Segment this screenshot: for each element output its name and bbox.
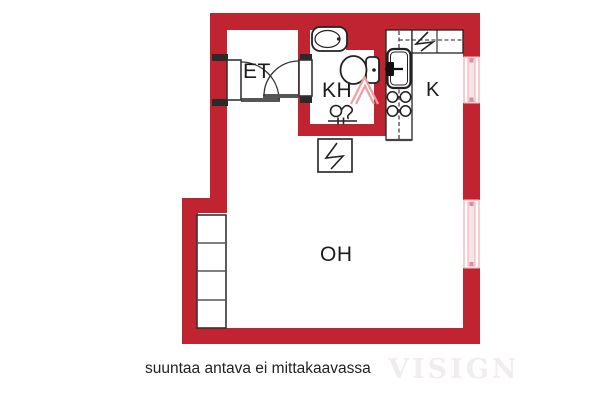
floor-plan: ET KH K OH suuntaa antava ei mittakaavas… bbox=[0, 0, 600, 400]
wall-kh-bottom bbox=[298, 124, 386, 136]
window-living-room bbox=[464, 200, 479, 268]
door-threshold bbox=[263, 94, 299, 98]
room-label-kh: KH bbox=[322, 80, 352, 101]
wall-top bbox=[212, 13, 480, 30]
room-label-oh: OH bbox=[320, 244, 353, 265]
wall-left-upper bbox=[210, 13, 227, 213]
wall-bottom bbox=[182, 328, 480, 344]
door-threshold bbox=[241, 98, 280, 102]
wardrobe bbox=[197, 215, 226, 328]
room-label-et: ET bbox=[243, 61, 271, 82]
door-jamb-icon bbox=[212, 54, 228, 61]
wall-kh-top-block bbox=[346, 30, 386, 50]
wall-left-lower bbox=[182, 198, 198, 344]
wall-right-middle bbox=[463, 103, 480, 200]
window-kitchen bbox=[464, 57, 479, 103]
door-jamb-icon bbox=[212, 99, 228, 106]
door-leaf-icon bbox=[227, 60, 241, 100]
floor-drain bbox=[328, 106, 357, 125]
room-label-k: K bbox=[426, 80, 440, 100]
floor-plan-drawing bbox=[0, 0, 600, 400]
door-jamb-icon bbox=[300, 96, 312, 103]
disclaimer-text: suuntaa antava ei mittakaavassa bbox=[145, 360, 371, 378]
visign-watermark: VISIGN bbox=[388, 354, 519, 385]
kitchen-sink bbox=[385, 49, 411, 88]
door-leaf-icon bbox=[299, 60, 312, 96]
washbasin bbox=[312, 27, 347, 51]
washing-machine bbox=[318, 139, 352, 172]
wall-right-upper bbox=[463, 13, 480, 57]
